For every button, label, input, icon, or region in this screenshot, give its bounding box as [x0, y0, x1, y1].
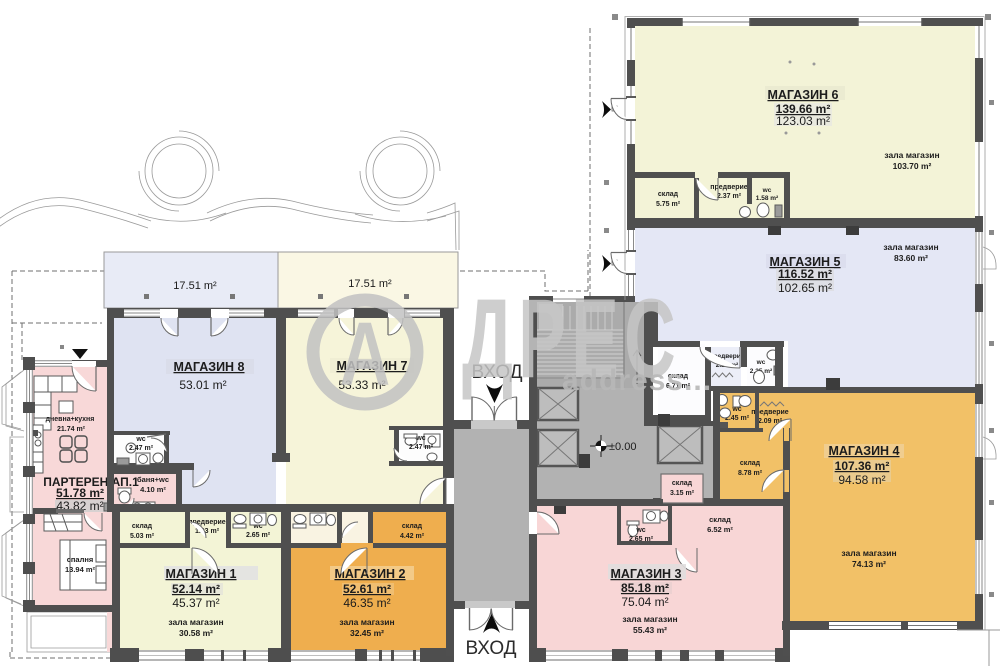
svg-text:МАГАЗИН 4: МАГАЗИН 4 — [828, 444, 899, 458]
svg-text:21.74 m²: 21.74 m² — [57, 426, 86, 433]
svg-text:46.35 m²: 46.35 m² — [343, 596, 390, 610]
svg-text:address...: address... — [562, 364, 712, 397]
svg-text:1.58 m²: 1.58 m² — [756, 195, 779, 202]
svg-text:13.94 m²: 13.94 m² — [65, 565, 96, 574]
svg-text:зала магазин: зала магазин — [884, 150, 939, 160]
svg-text:30.58 m²: 30.58 m² — [179, 628, 213, 638]
svg-text:8.78 m²: 8.78 m² — [738, 470, 763, 477]
svg-text:123.03 m²: 123.03 m² — [776, 114, 830, 128]
svg-text:51.78 m²: 51.78 m² — [56, 486, 104, 500]
svg-text:55.43 m²: 55.43 m² — [633, 625, 667, 635]
svg-text:74.13 m²: 74.13 m² — [852, 559, 886, 569]
svg-text:52.14 m²: 52.14 m² — [172, 582, 220, 596]
svg-text:103.70 m²: 103.70 m² — [893, 161, 932, 171]
svg-text:склад: склад — [709, 515, 731, 524]
svg-text:МАГАЗИН 3: МАГАЗИН 3 — [610, 567, 681, 581]
svg-text:75.04 m²: 75.04 m² — [621, 595, 668, 609]
svg-text:±0.00: ±0.00 — [609, 441, 636, 453]
svg-text:53.01 m²: 53.01 m² — [179, 378, 226, 392]
svg-text:45.37 m²: 45.37 m² — [172, 596, 219, 610]
svg-text:дневна+кухня: дневна+кухня — [46, 416, 95, 423]
svg-text:52.61 m²: 52.61 m² — [343, 582, 391, 596]
svg-text:4.10 m²: 4.10 m² — [140, 485, 166, 494]
svg-text:зала магазин: зала магазин — [841, 548, 896, 558]
svg-text:МАГАЗИН 6: МАГАЗИН 6 — [767, 88, 838, 102]
svg-text:116.52 m²: 116.52 m² — [778, 267, 832, 281]
svg-text:2.37 m²: 2.37 m² — [717, 193, 742, 200]
svg-text:6.52 m²: 6.52 m² — [707, 525, 733, 534]
svg-text:зала магазин: зала магазин — [622, 614, 677, 624]
svg-text:склад: склад — [402, 523, 423, 530]
svg-text:32.45 m²: 32.45 m² — [350, 628, 384, 638]
svg-text:5.75 m²: 5.75 m² — [656, 201, 681, 208]
svg-text:5.03 m²: 5.03 m² — [130, 533, 155, 540]
svg-text:зала магазин: зала магазин — [168, 617, 223, 627]
svg-text:ВХОД: ВХОД — [465, 638, 516, 659]
svg-text:зала магазин: зала магазин — [883, 242, 938, 252]
svg-text:102.65 m²: 102.65 m² — [778, 281, 832, 295]
svg-text:А: А — [340, 305, 391, 405]
svg-text:107.36 m²: 107.36 m² — [835, 459, 890, 473]
svg-text:склад: склад — [658, 191, 679, 198]
svg-text:85.18 m²: 85.18 m² — [621, 581, 669, 595]
svg-text:предверие: предверие — [710, 184, 748, 191]
svg-text:2.47 m²: 2.47 m² — [129, 445, 154, 452]
svg-text:МАГАЗИН 1: МАГАЗИН 1 — [165, 567, 236, 581]
svg-text:4.42 m²: 4.42 m² — [400, 533, 425, 540]
svg-text:спалня: спалня — [67, 555, 94, 564]
svg-text:2.65 m²: 2.65 m² — [246, 532, 271, 539]
svg-text:17.51 m²: 17.51 m² — [348, 278, 392, 290]
svg-text:склад: склад — [132, 523, 153, 530]
svg-text:2.47 m²: 2.47 m² — [409, 444, 434, 451]
svg-text:17.51 m²: 17.51 m² — [173, 280, 217, 292]
svg-text:склад: склад — [672, 480, 693, 487]
svg-text:wc: wc — [756, 359, 766, 366]
svg-text:3.15 m²: 3.15 m² — [670, 490, 695, 497]
svg-text:wc: wc — [762, 187, 772, 194]
svg-text:83.60 m²: 83.60 m² — [894, 253, 928, 263]
svg-text:wc: wc — [635, 527, 645, 534]
svg-text:wc: wc — [135, 436, 145, 443]
svg-text:баня+wc: баня+wc — [137, 475, 169, 484]
svg-text:94.58 m²: 94.58 m² — [838, 473, 885, 487]
svg-text:МАГАЗИН 8: МАГАЗИН 8 — [173, 360, 244, 374]
svg-text:зала магазин: зала магазин — [339, 617, 394, 627]
svg-text:склад: склад — [740, 460, 761, 467]
svg-text:wc: wc — [415, 435, 425, 442]
